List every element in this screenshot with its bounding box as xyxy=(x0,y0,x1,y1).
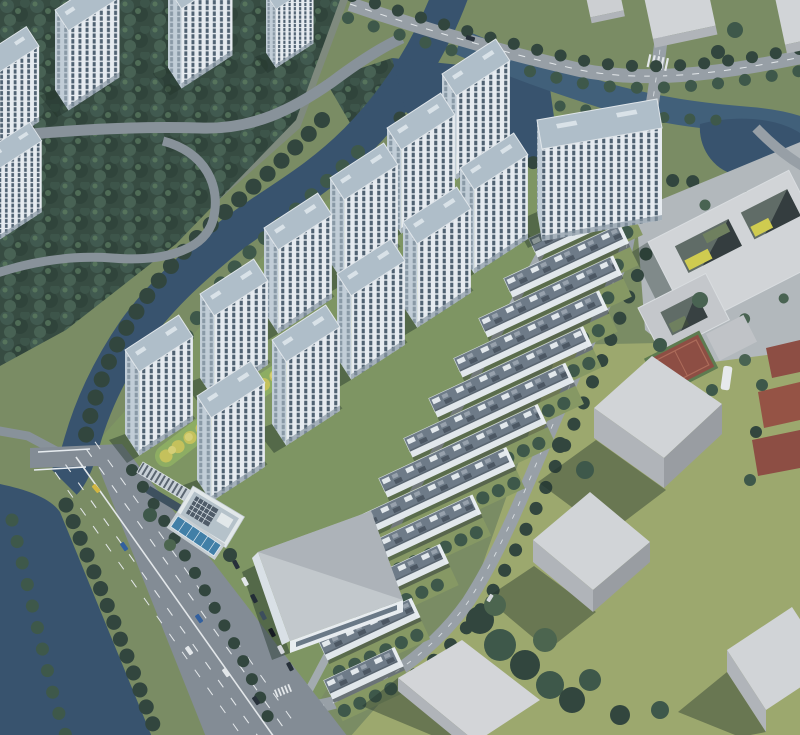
aerial-rendering: Bird's-eye aerial rendering of a riversi… xyxy=(0,0,800,735)
atmosphere-overlay xyxy=(0,0,800,735)
rendering-canvas xyxy=(0,0,800,735)
